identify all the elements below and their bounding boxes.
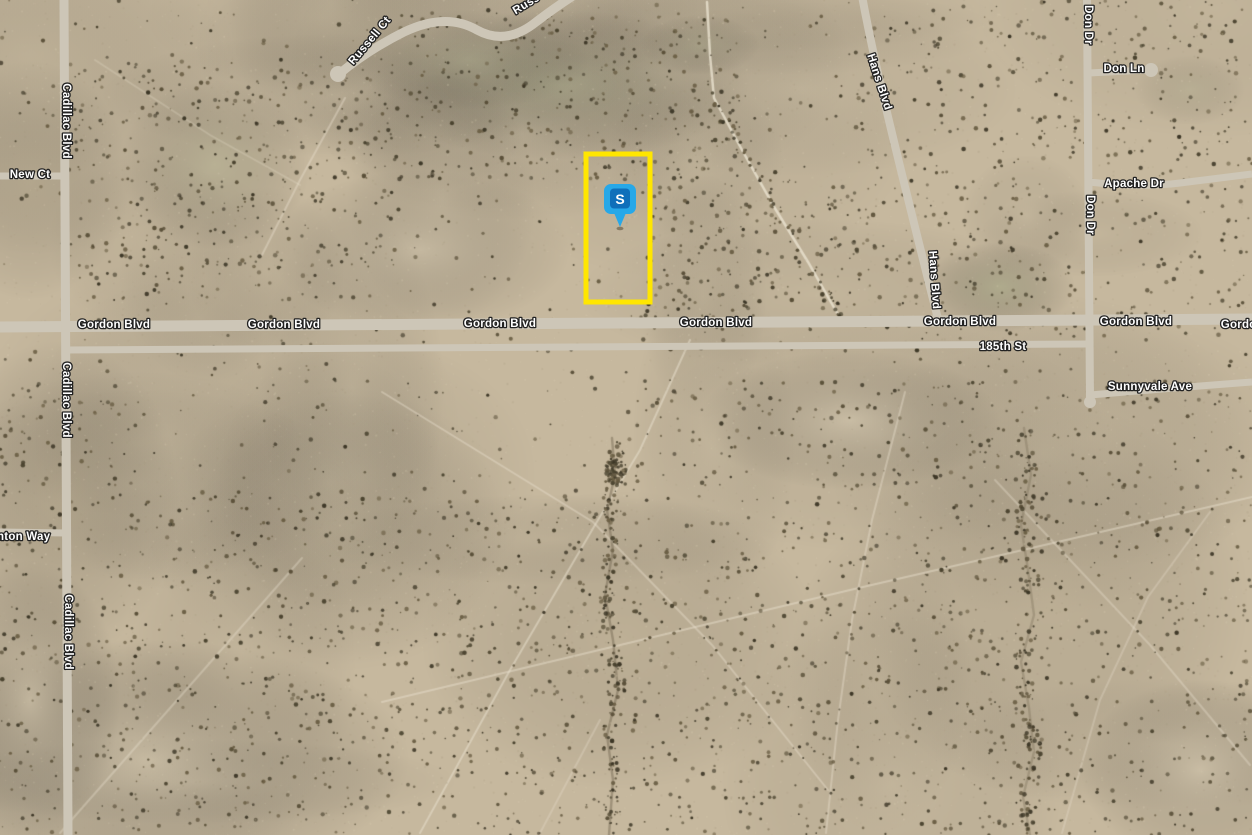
- road-label: Gordon Blvd: [1221, 319, 1252, 331]
- pin-shadow: [617, 227, 624, 231]
- road-hans-blvd: [862, 0, 938, 319]
- pin-letter: S: [615, 191, 624, 207]
- road-label: Gordon Blvd: [680, 317, 752, 329]
- property-marker-pin[interactable]: S: [604, 184, 636, 230]
- road-label: Gordon Blvd: [464, 318, 536, 330]
- road-label: New Ct: [10, 169, 50, 181]
- road-label: Hans Blvd: [864, 52, 893, 111]
- road-label: nton Way: [0, 531, 51, 543]
- road-label: Cadillac Blvd: [60, 362, 72, 437]
- road-label: Gordon Blvd: [78, 319, 150, 331]
- road-label: Cadillac Blvd: [60, 83, 72, 158]
- road-label: Gordon Blvd: [248, 319, 320, 331]
- road-label: 185th St: [980, 341, 1027, 353]
- road-label: Sunnyvale Ave: [1108, 381, 1192, 393]
- road-label: Gordon Blvd: [1100, 316, 1172, 328]
- road-185th-st: [64, 344, 1088, 350]
- roads: [0, 0, 1252, 835]
- road-gordon-blvd: [0, 319, 1252, 327]
- road-labels: Cadillac BlvdCadillac BlvdCadillac BlvdN…: [0, 0, 1252, 670]
- satellite-map[interactable]: Cadillac BlvdCadillac BlvdCadillac BlvdN…: [0, 0, 1252, 835]
- road-label: Gordon Blvd: [924, 316, 996, 328]
- road-label: Hans Blvd: [926, 250, 942, 309]
- road-label: Don Ln: [1103, 63, 1144, 75]
- road-label: Cadillac Blvd: [62, 594, 74, 669]
- road-label: Don Dr: [1084, 195, 1096, 235]
- road-label: Apache Dr: [1104, 178, 1164, 190]
- road-label: Don Dr: [1082, 5, 1094, 45]
- map-overlay: Cadillac BlvdCadillac BlvdCadillac BlvdN…: [0, 0, 1252, 835]
